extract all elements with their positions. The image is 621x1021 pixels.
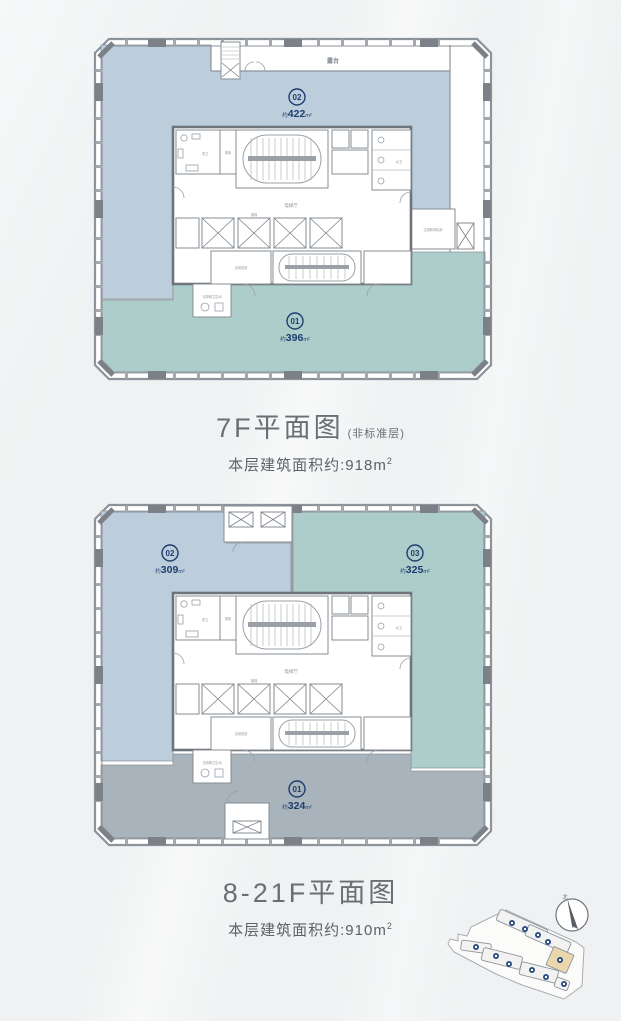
ac-room-label: 空调新风机房 xyxy=(423,227,442,232)
floor-plan-8-21f: 男卫 弱电 女卫 电梯厅 xyxy=(93,503,493,847)
weak-elec-label: 弱电 xyxy=(225,616,232,621)
svg-text:03: 03 xyxy=(411,549,420,558)
page: 露台 空调新风机房 xyxy=(0,0,621,1021)
svg-text:02: 02 xyxy=(293,93,302,102)
svg-text:02: 02 xyxy=(166,549,175,558)
male-wc-label: 男卫 xyxy=(202,151,209,156)
accessible-wc-label: 无障碍卫生间 xyxy=(202,294,221,299)
terrace-label: 露台 xyxy=(327,57,339,65)
north-label: 北 xyxy=(562,893,568,901)
lift-label: 客梯 xyxy=(251,212,258,217)
compass: 北 xyxy=(556,893,588,931)
plan7-subtitle: 本层建筑面积约:918m2 xyxy=(0,454,621,475)
shared-lobby-label: 合用前室 xyxy=(235,265,248,270)
svg-text:01: 01 xyxy=(293,785,302,794)
male-wc-label: 男卫 xyxy=(202,617,209,622)
svg-text:01: 01 xyxy=(291,317,300,326)
elevator-hall-label: 电梯厅 xyxy=(284,668,298,675)
female-wc-label: 女卫 xyxy=(396,625,403,630)
plan7-caption: 7F平面图(非标准层) 本层建筑面积约:918m2 xyxy=(0,406,621,475)
female-wc-label: 女卫 xyxy=(396,159,403,164)
lift-label: 客梯 xyxy=(251,678,258,683)
accessible-wc-label: 无障碍卫生间 xyxy=(202,760,221,765)
elevator-hall-label: 电梯厅 xyxy=(284,202,298,209)
shared-lobby-label: 合用前室 xyxy=(235,731,248,736)
site-key-plan: 北 xyxy=(436,868,616,1018)
plan7-title-note: (非标准层) xyxy=(348,428,405,440)
weak-elec-label: 弱电 xyxy=(225,150,232,155)
top-shaft xyxy=(221,42,240,79)
plan7-title: 7F平面图(非标准层) xyxy=(0,406,621,445)
floor-plan-7f: 露台 空调新风机房 xyxy=(93,37,493,381)
